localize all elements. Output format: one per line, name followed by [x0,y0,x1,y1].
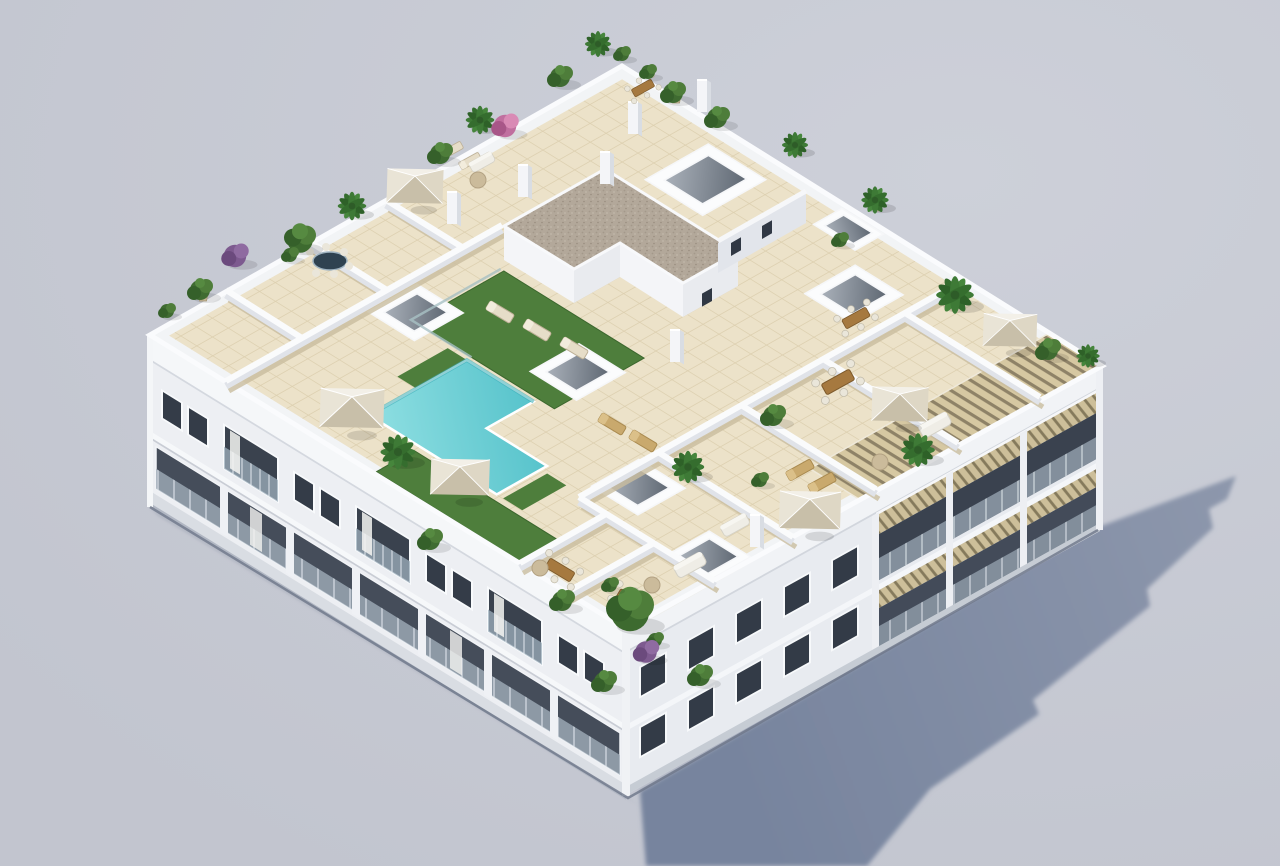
chimney [447,192,461,227]
building-render [0,0,1280,866]
curtain [250,507,262,552]
round-table [532,560,548,576]
render-stage [0,0,1280,866]
round-table [470,172,486,188]
building-corner-east [1096,366,1103,530]
building-corner-west [147,335,153,507]
chimney [518,165,532,200]
building-corner-south [622,629,630,796]
round-table [644,577,660,593]
chimney [670,330,684,365]
chimney [600,152,614,187]
chimney [750,515,764,550]
chimney [628,102,642,137]
curtain [450,630,462,675]
round-table [872,454,888,470]
chimney [697,80,711,115]
